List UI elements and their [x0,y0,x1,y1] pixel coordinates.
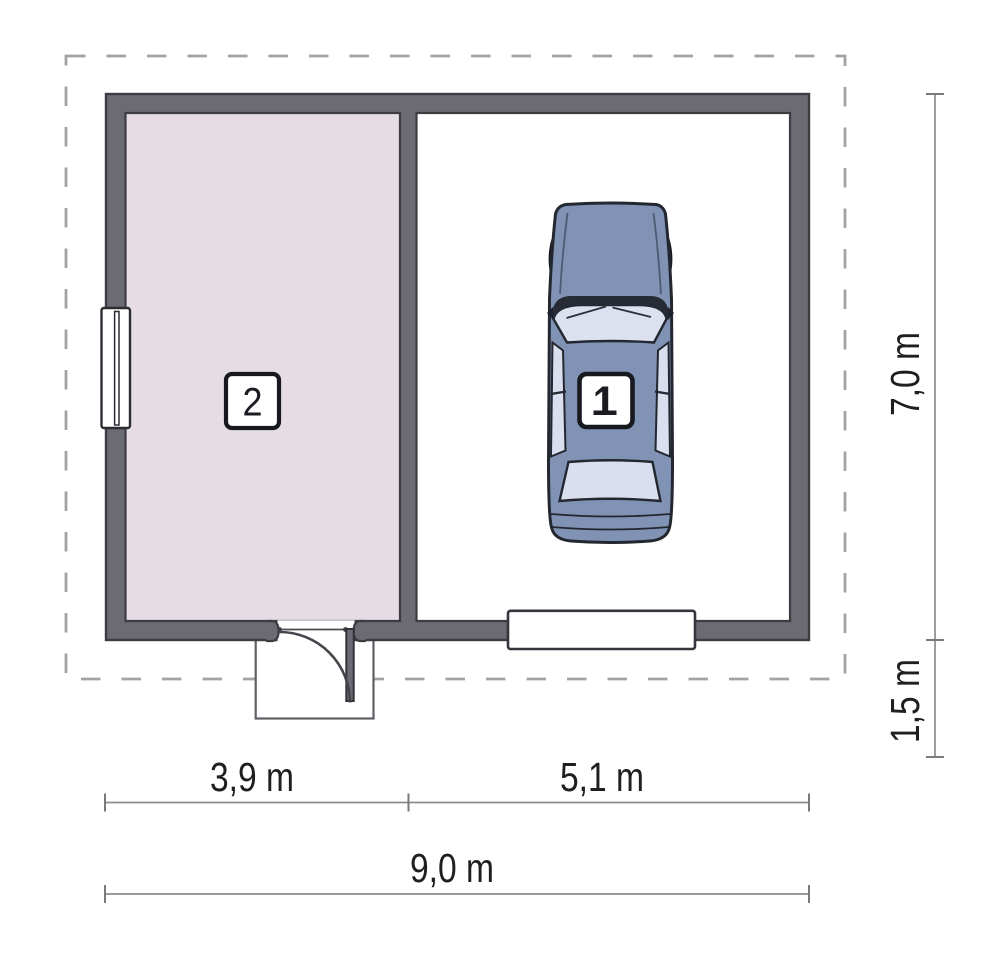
svg-text:2: 2 [242,381,262,425]
svg-text:9,0 m: 9,0 m [410,845,494,891]
svg-text:1,5 m: 1,5 m [882,659,928,743]
svg-text:7,0 m: 7,0 m [882,332,928,416]
svg-text:3,9 m: 3,9 m [210,754,294,800]
svg-text:5,1 m: 5,1 m [560,754,644,800]
